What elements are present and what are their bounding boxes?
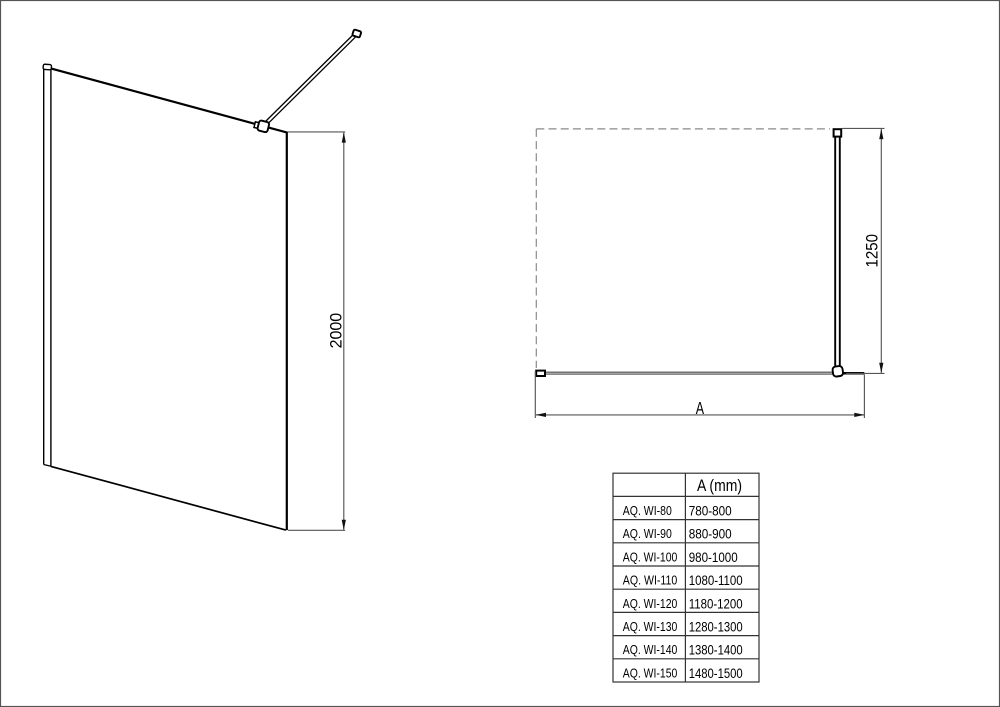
svg-text:AQ. WI-130: AQ. WI-130 <box>623 619 678 634</box>
svg-text:780-800: 780-800 <box>689 504 732 520</box>
svg-text:1280-1300: 1280-1300 <box>689 620 743 636</box>
svg-text:AQ. WI-150: AQ. WI-150 <box>623 665 678 680</box>
svg-text:AQ. WI-140: AQ. WI-140 <box>623 642 678 657</box>
svg-text:1250: 1250 <box>863 234 882 267</box>
svg-text:AQ. WI-100: AQ. WI-100 <box>623 549 678 564</box>
svg-text:1080-1100: 1080-1100 <box>689 573 743 589</box>
svg-text:1180-1200: 1180-1200 <box>689 596 743 612</box>
svg-text:880-900: 880-900 <box>689 527 732 543</box>
svg-text:AQ. WI-110: AQ. WI-110 <box>623 573 678 588</box>
svg-text:2000: 2000 <box>327 313 346 349</box>
svg-text:AQ. WI-120: AQ. WI-120 <box>623 596 678 611</box>
svg-text:AQ. WI-90: AQ. WI-90 <box>623 526 672 541</box>
svg-text:1480-1500: 1480-1500 <box>689 666 743 682</box>
svg-text:1380-1400: 1380-1400 <box>689 643 743 659</box>
svg-text:AQ. WI-80: AQ. WI-80 <box>623 503 672 518</box>
svg-text:A: A <box>696 398 705 418</box>
svg-text:A (mm): A (mm) <box>697 476 742 495</box>
svg-text:980-1000: 980-1000 <box>689 550 738 566</box>
